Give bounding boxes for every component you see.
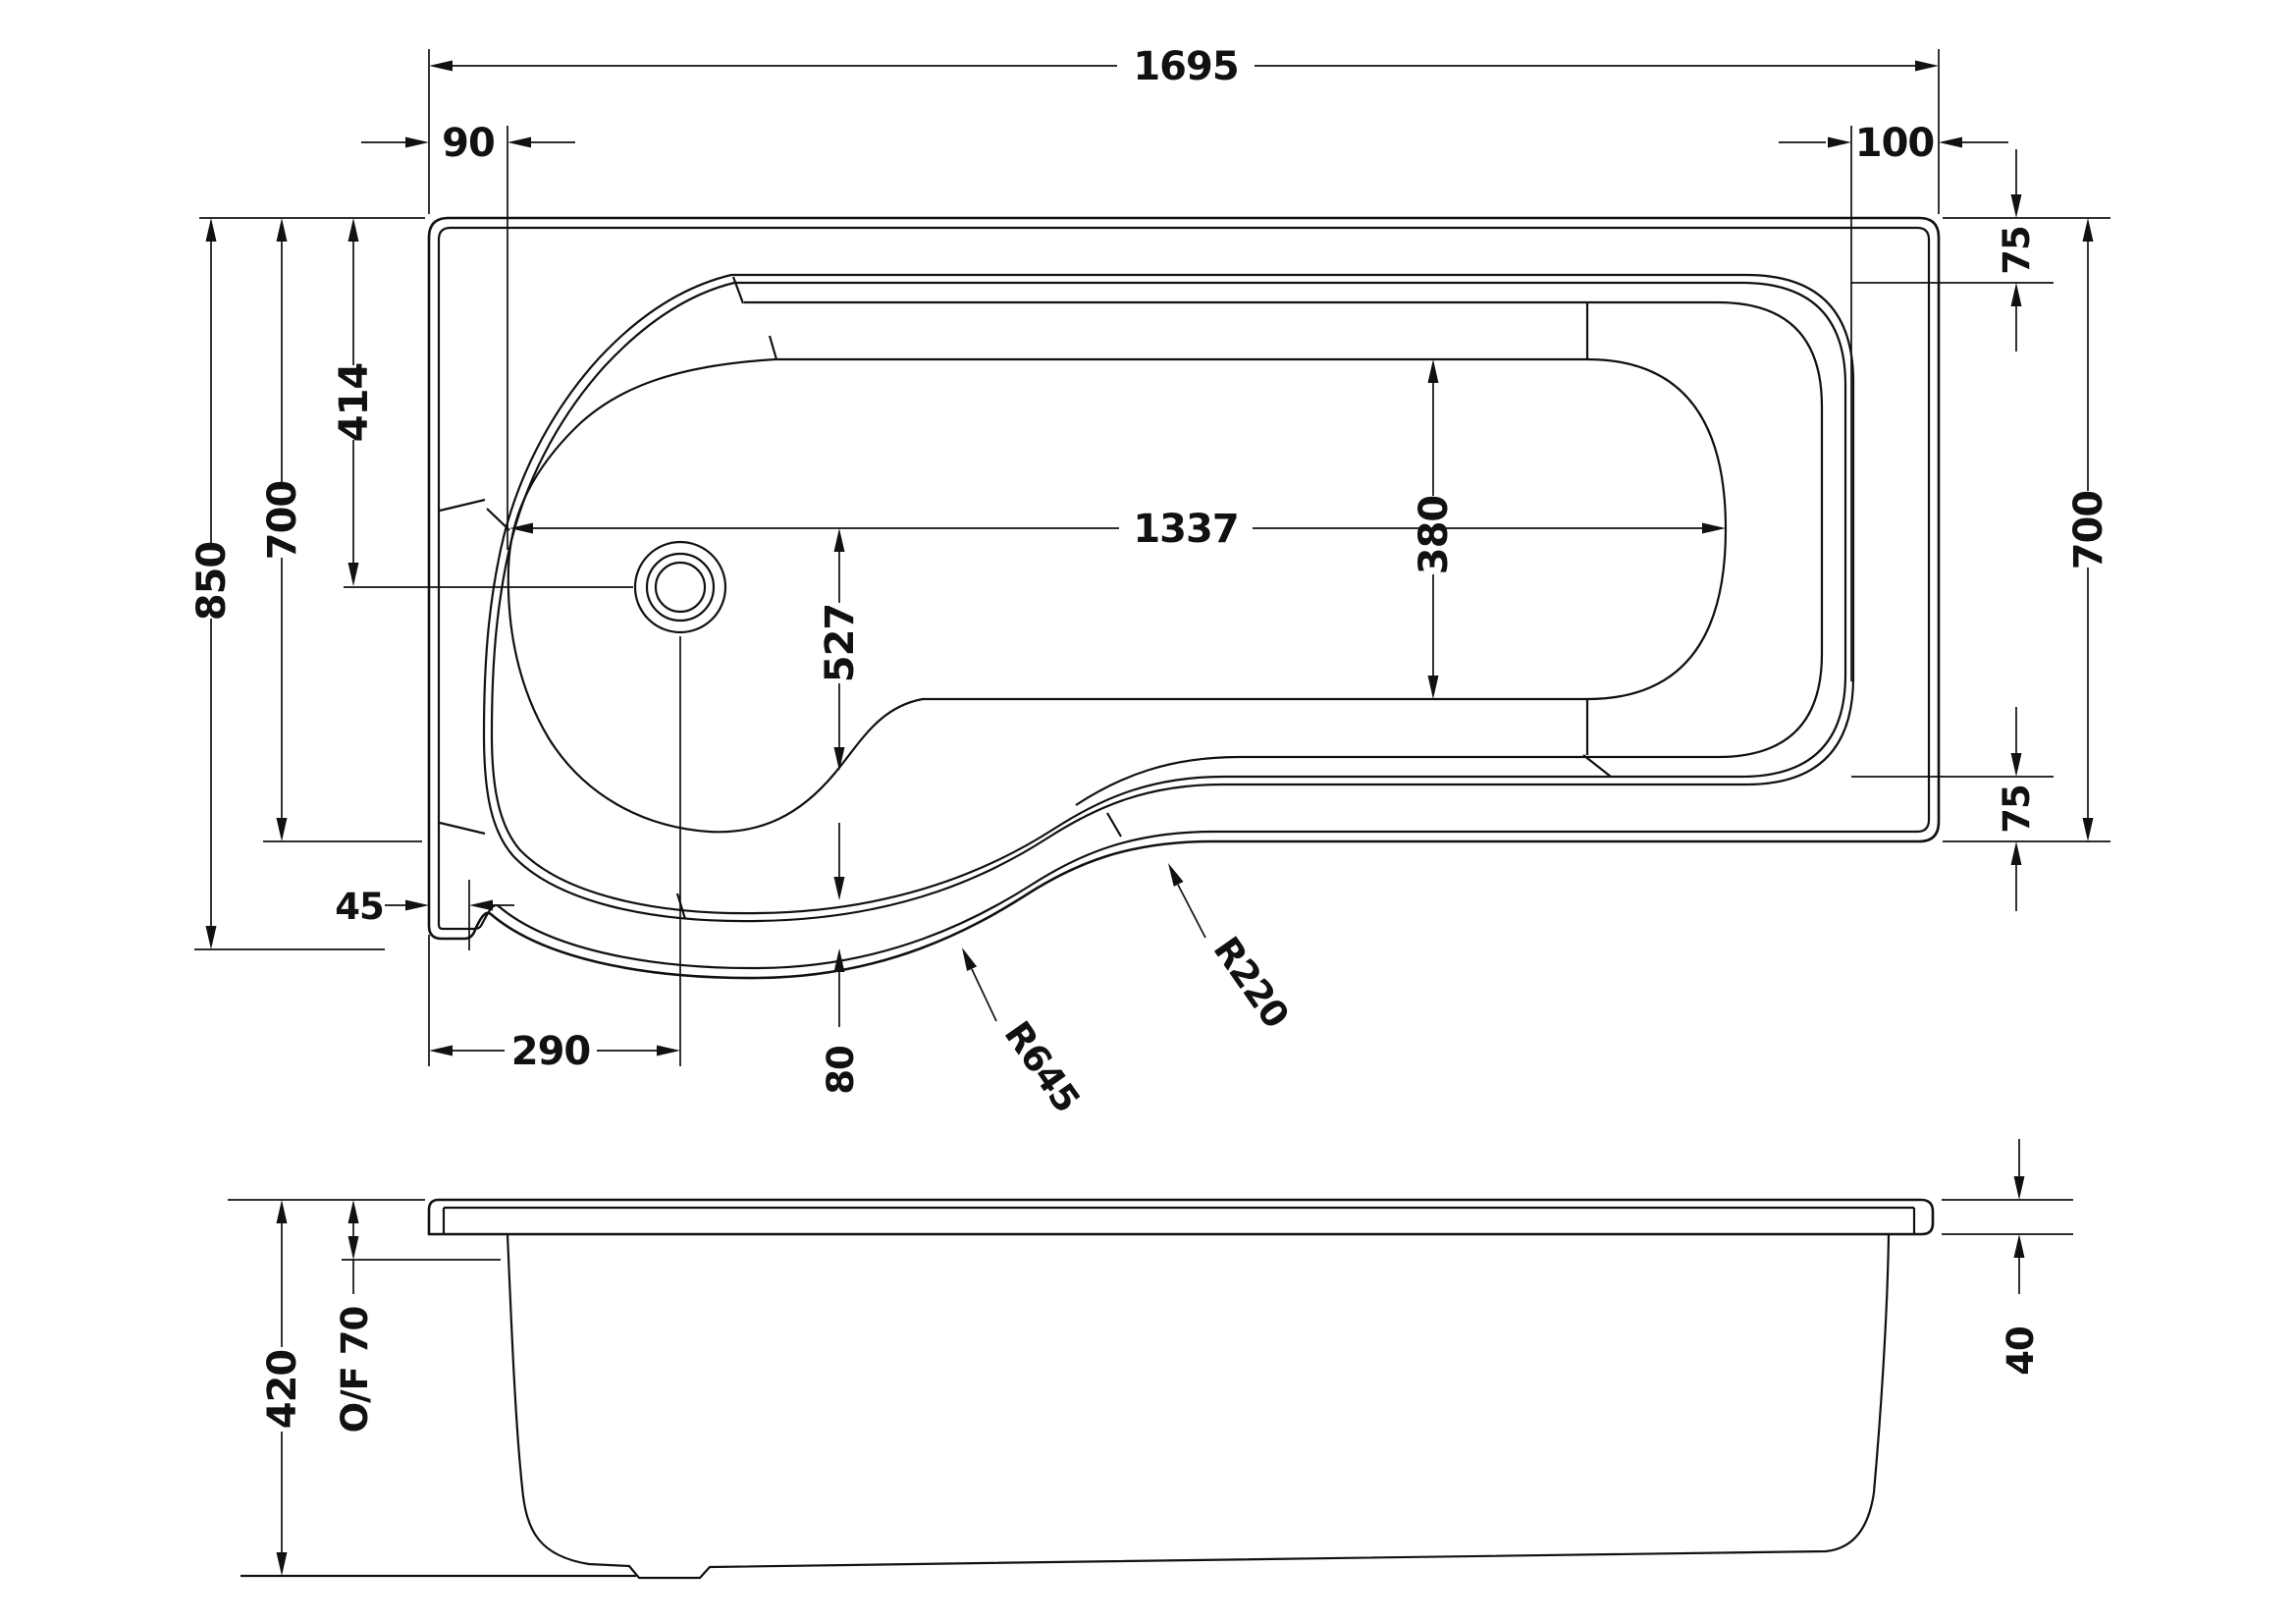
dim-radius-large: R645 — [962, 947, 1088, 1119]
side-view — [240, 1200, 1933, 1578]
dim-label-1337: 1337 — [1133, 507, 1238, 552]
shelf-line — [744, 302, 1822, 805]
dim-label-700-right: 700 — [2066, 491, 2111, 570]
side-view-dimensions: 420 O/F 70 40 — [228, 1139, 2073, 1576]
dim-overall-width: 850 — [189, 218, 235, 949]
dim-label-80: 80 — [820, 1046, 862, 1095]
dim-label-527: 527 — [818, 604, 863, 683]
dim-bowl-depth: 527 — [818, 528, 863, 771]
top-view — [344, 218, 1939, 1066]
top-view-dimensions: 1695 90 100 75 700 — [189, 44, 2111, 1119]
drawing-canvas: 1695 90 100 75 700 — [0, 0, 2296, 1623]
dim-label-of70: O/F 70 — [334, 1307, 376, 1434]
dim-label-100: 100 — [1855, 121, 1935, 166]
ledge-outer-curve — [484, 275, 1853, 921]
dim-label-r220: R220 — [1205, 929, 1298, 1035]
dim-label-380: 380 — [1412, 496, 1457, 575]
dim-label-r645: R645 — [996, 1013, 1089, 1119]
dim-label-700-left: 700 — [260, 481, 305, 561]
dim-label-75-top: 75 — [1996, 226, 2038, 275]
dim-overall-length: 1695 — [429, 44, 1939, 89]
dim-label-420: 420 — [260, 1350, 305, 1430]
bowl-outline — [508, 359, 1726, 832]
drain-waste — [344, 542, 725, 1066]
dim-rim-thickness: 40 — [2000, 1139, 2042, 1376]
dim-rim-top-right: 75 — [1996, 149, 2038, 352]
dim-label-75-bottom: 75 — [1996, 784, 2038, 834]
dim-label-40: 40 — [2000, 1326, 2042, 1376]
dim-right-offset: 100 — [1779, 121, 2008, 166]
dim-step: 45 — [335, 886, 514, 928]
dim-label-414: 414 — [332, 363, 377, 443]
ledge-inner-curve — [492, 283, 1845, 913]
dim-side-height-left: 700 — [260, 218, 305, 841]
bath-rim-inner-line — [439, 228, 1929, 968]
tub-profile — [507, 1234, 1889, 1578]
rim-slab-outline — [429, 1200, 1933, 1234]
dim-side-height-right: 700 — [2066, 218, 2111, 841]
dim-radius-small: R220 — [1168, 863, 1297, 1035]
technical-drawing: 1695 90 100 75 700 — [0, 0, 2296, 1623]
dim-label-850: 850 — [189, 542, 235, 622]
dim-label-290: 290 — [511, 1029, 591, 1074]
dim-label-45: 45 — [335, 886, 384, 928]
dim-bowl-width: 380 — [1412, 359, 1457, 699]
dim-rim-bottom-right: 75 — [1996, 707, 2038, 911]
dim-bowl-length: 1337 — [509, 507, 1726, 552]
dim-label-1695: 1695 — [1133, 44, 1238, 89]
extension-lines — [194, 49, 2110, 1066]
dim-overall-height: 420 — [260, 1200, 305, 1576]
dim-overflow: O/F 70 — [334, 1200, 376, 1433]
dim-drain-depth: 414 — [332, 218, 377, 586]
side-extension-lines — [228, 1200, 2073, 1260]
dim-left-offset: 90 — [361, 121, 575, 166]
bath-outer-outline — [429, 218, 1939, 978]
dim-label-90: 90 — [442, 121, 495, 166]
dim-drain-offset: 290 — [429, 1029, 680, 1074]
